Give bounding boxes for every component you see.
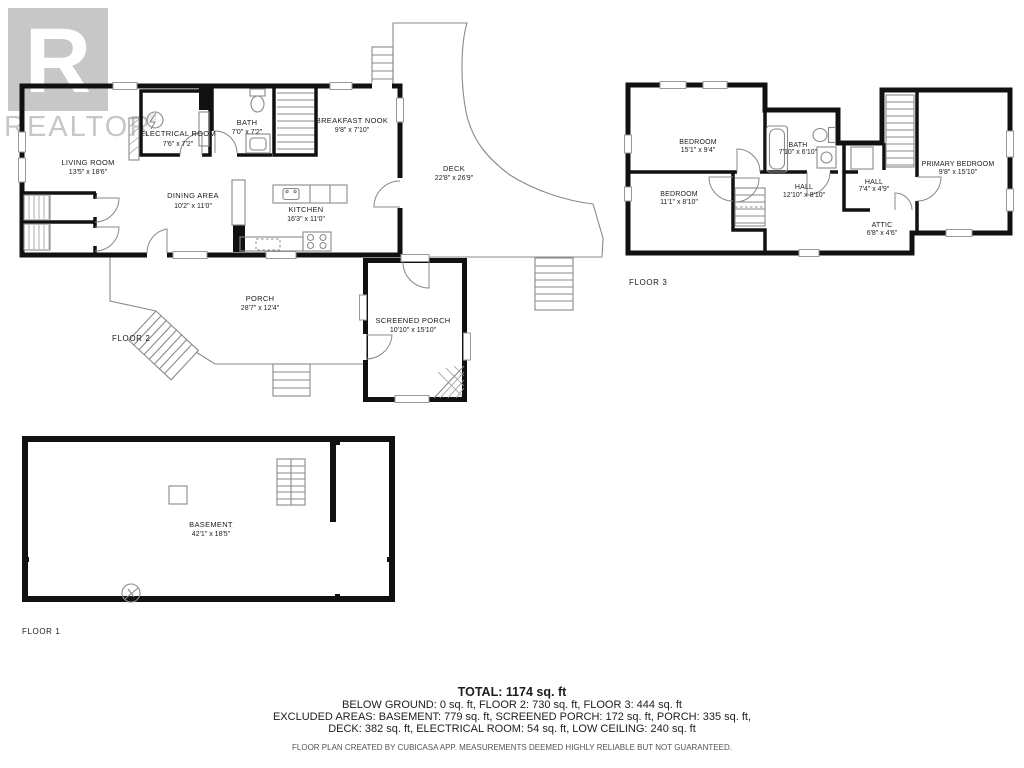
summary-line1: BELOW GROUND: 0 sq. ft, FLOOR 2: 730 sq.… [342, 699, 682, 711]
basement-dims: 42'1" x 18'5" [192, 531, 231, 538]
breakfast-nook-label: BREAKFAST NOOK [316, 116, 388, 125]
primary-bedroom-dims: 9'8" x 15'10" [939, 169, 978, 176]
deck-bottom-stairs [535, 258, 573, 310]
attic-label: ATTIC [872, 222, 893, 229]
screened-porch-label: SCREENED PORCH [375, 316, 450, 325]
living-room-label: LIVING ROOM [61, 158, 114, 167]
bedroom1-dims: 15'1" x 9'4" [681, 147, 716, 154]
porch-label: PORCH [246, 294, 275, 303]
kitchen-label: KITCHEN [288, 205, 323, 214]
dining-cabinet [232, 180, 245, 225]
summary-disclaimer: FLOOR PLAN CREATED BY CUBICASA APP. MEAS… [292, 743, 732, 752]
screened-porch-corner-hatch [434, 366, 464, 398]
kitchen-stove [303, 232, 331, 251]
kitchen-counter [240, 237, 303, 251]
dining-area-label: DINING AREA [167, 191, 219, 200]
bath2-dims: 7'0" x 7'2" [232, 129, 263, 136]
bedroom2-label: BEDROOM [660, 191, 698, 198]
hall1-dims: 12'10" x 8'10" [783, 192, 826, 199]
primary-bedroom-label: PRIMARY BEDROOM [922, 161, 995, 168]
bath2-sink [246, 134, 270, 153]
kitchen-island [273, 185, 347, 203]
deck-dims: 22'8" x 26'9" [435, 175, 474, 182]
floor2-deck-outline [372, 23, 603, 310]
hall2-dims: 7'4" x 4'9" [859, 186, 890, 193]
bath3-label: BATH [789, 142, 808, 149]
bedroom1-label: BEDROOM [679, 139, 717, 146]
bath3-sink [817, 147, 836, 168]
electrical-room-dims: 7'6" x 7'2" [163, 141, 194, 148]
bath3-dims: 7'10" x 6'10" [779, 149, 818, 156]
bath2-label: BATH [237, 118, 258, 127]
basement-walls [25, 439, 392, 599]
bath3-toilet [813, 128, 836, 143]
attic-dims: 6'8" x 4'6" [867, 230, 898, 237]
basement-label: BASEMENT [189, 520, 233, 529]
floor3-label: FLOOR 3 [629, 278, 667, 287]
basement-stairs [277, 459, 305, 505]
floor2-stairs [277, 93, 314, 149]
summary-line2: EXCLUDED AREAS: BASEMENT: 779 sq. ft, SC… [273, 711, 751, 723]
kitchen-dims: 16'3" x 11'0" [287, 216, 325, 223]
realtor-brand-text: REALTOR [4, 111, 152, 143]
basement-column [169, 486, 187, 504]
floor3-stairs [735, 95, 914, 226]
living-room-dims: 13'5" x 18'6" [69, 169, 108, 176]
floor1-label: FLOOR 1 [22, 627, 60, 636]
floor-plan-svg: R REALTOR ® [0, 0, 1024, 768]
chimney-box [851, 147, 873, 169]
porch-diagonal-stairs [129, 311, 199, 380]
electrical-room-label: ELECTRICAL ROOM [140, 129, 216, 138]
porch-dims: 28'7" x 12'4" [241, 305, 280, 312]
floor-plan-page: R REALTOR ® [0, 0, 1024, 768]
floor1-plan: BASEMENT 42'1" x 18'5" FLOOR 1 [22, 439, 392, 636]
summary-line3: DECK: 382 sq. ft, ELECTRICAL ROOM: 54 sq… [328, 723, 696, 735]
summary-total: TOTAL: 1174 sq. ft [458, 685, 567, 699]
deck-top-stairs [372, 47, 393, 86]
area-summary: TOTAL: 1174 sq. ft BELOW GROUND: 0 sq. f… [273, 685, 751, 752]
breakfast-nook-dims: 9'8" x 7'10" [335, 127, 370, 134]
bedroom2-dims: 11'1" x 8'10" [660, 199, 698, 206]
hall1-label: HALL [795, 184, 813, 191]
realtor-logo-r-icon: R [25, 10, 91, 112]
porch-bottom-stairs [273, 364, 310, 396]
dining-area-dims: 10'2" x 11'0" [174, 203, 212, 210]
realtor-watermark: R REALTOR ® [4, 8, 156, 143]
floor2-porch-outline [110, 257, 363, 396]
hall2-label: HALL [865, 179, 883, 186]
bath2-toilet [250, 89, 265, 112]
floor3-plan: BEDROOM 15'1" x 9'4" BEDROOM 11'1" x 8'1… [625, 82, 1014, 288]
screened-porch-dims: 10'10" x 15'10" [390, 327, 437, 334]
deck-label: DECK [443, 164, 465, 173]
floor2-label: FLOOR 2 [112, 334, 150, 343]
